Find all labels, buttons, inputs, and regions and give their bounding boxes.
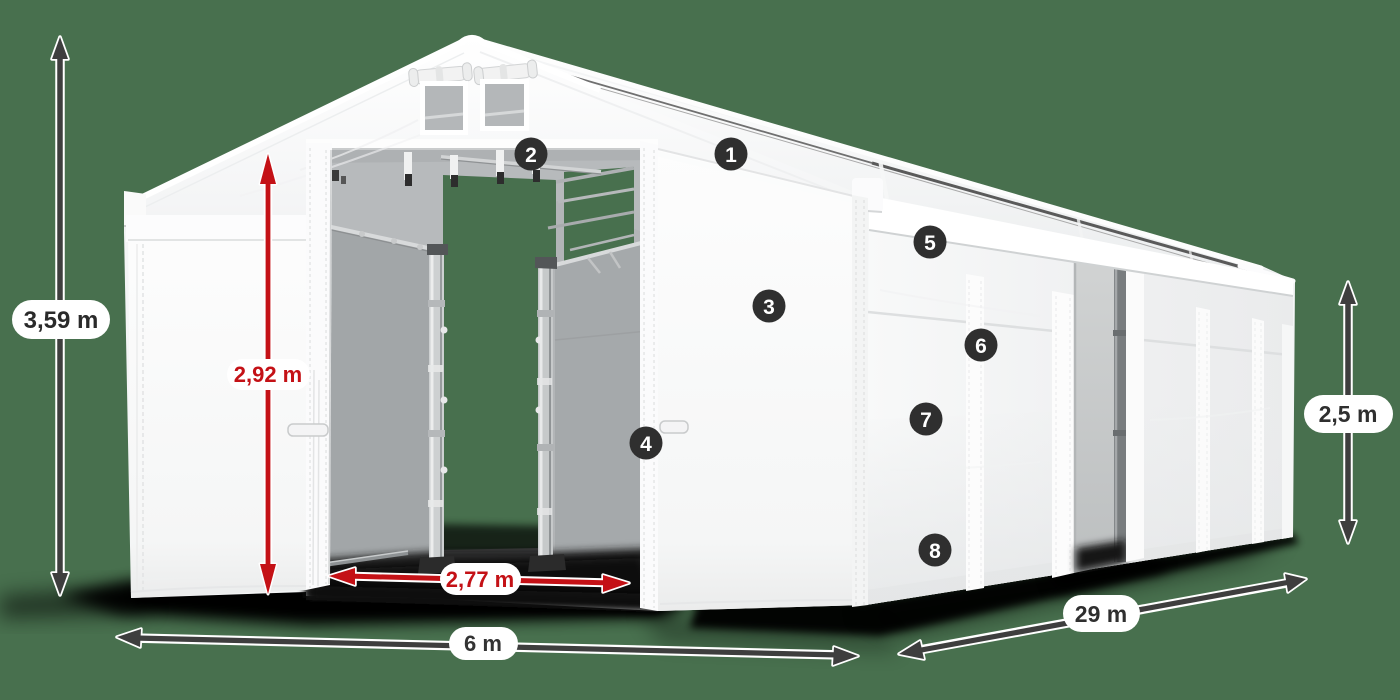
svg-text:2,5 m: 2,5 m <box>1319 401 1378 427</box>
svg-text:7: 7 <box>920 409 932 432</box>
svg-text:6 m: 6 m <box>464 631 502 656</box>
svg-text:29 m: 29 m <box>1075 601 1127 627</box>
svg-text:2,92 m: 2,92 m <box>234 362 303 387</box>
svg-text:2,77 m: 2,77 m <box>446 567 515 592</box>
svg-text:1: 1 <box>725 144 737 167</box>
svg-text:2: 2 <box>525 144 537 167</box>
svg-text:6: 6 <box>975 335 987 358</box>
svg-text:5: 5 <box>924 232 936 255</box>
svg-text:3: 3 <box>763 296 775 319</box>
svg-text:8: 8 <box>929 540 941 563</box>
svg-text:4: 4 <box>640 433 652 456</box>
svg-text:3,59 m: 3,59 m <box>24 307 99 334</box>
